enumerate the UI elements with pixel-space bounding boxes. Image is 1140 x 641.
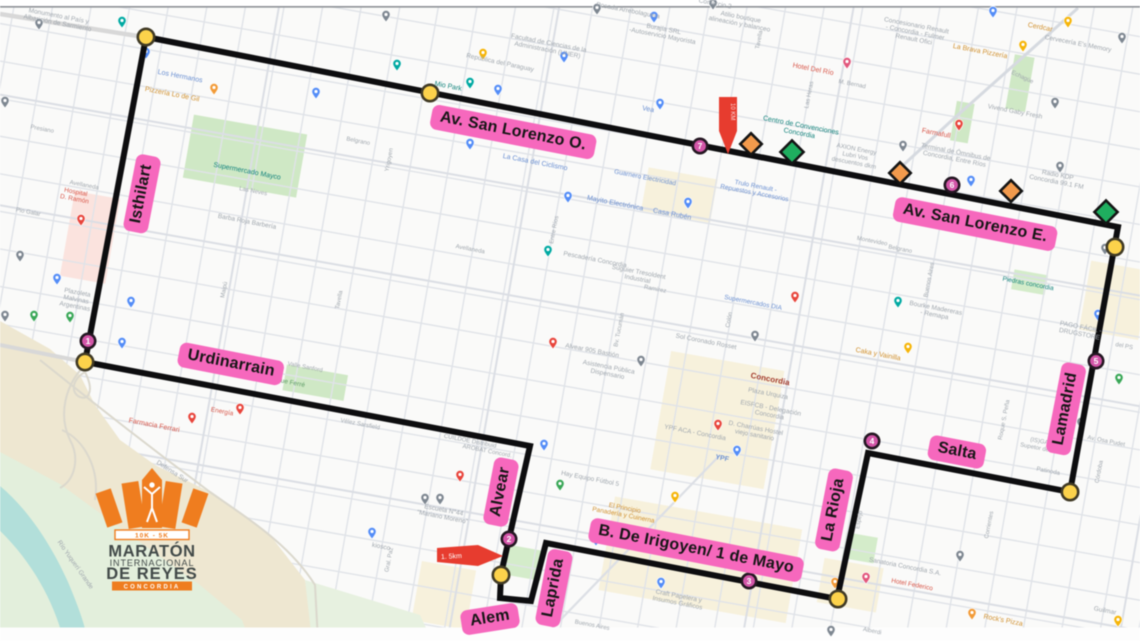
svg-text:1: 1 bbox=[86, 336, 91, 346]
svg-text:2: 2 bbox=[507, 534, 512, 544]
svg-text:10 KM: 10 KM bbox=[729, 103, 735, 120]
svg-text:4: 4 bbox=[870, 436, 875, 446]
svg-text:3: 3 bbox=[747, 576, 752, 586]
svg-text:1. 5km: 1. 5km bbox=[441, 553, 463, 561]
svg-text:10K - 5K: 10K - 5K bbox=[135, 533, 169, 540]
svg-text:6: 6 bbox=[950, 180, 955, 190]
svg-text:CONCORDIA: CONCORDIA bbox=[124, 585, 181, 591]
svg-text:DE REYES: DE REYES bbox=[106, 565, 197, 583]
svg-text:5: 5 bbox=[1094, 356, 1099, 366]
svg-text:7: 7 bbox=[698, 141, 703, 151]
